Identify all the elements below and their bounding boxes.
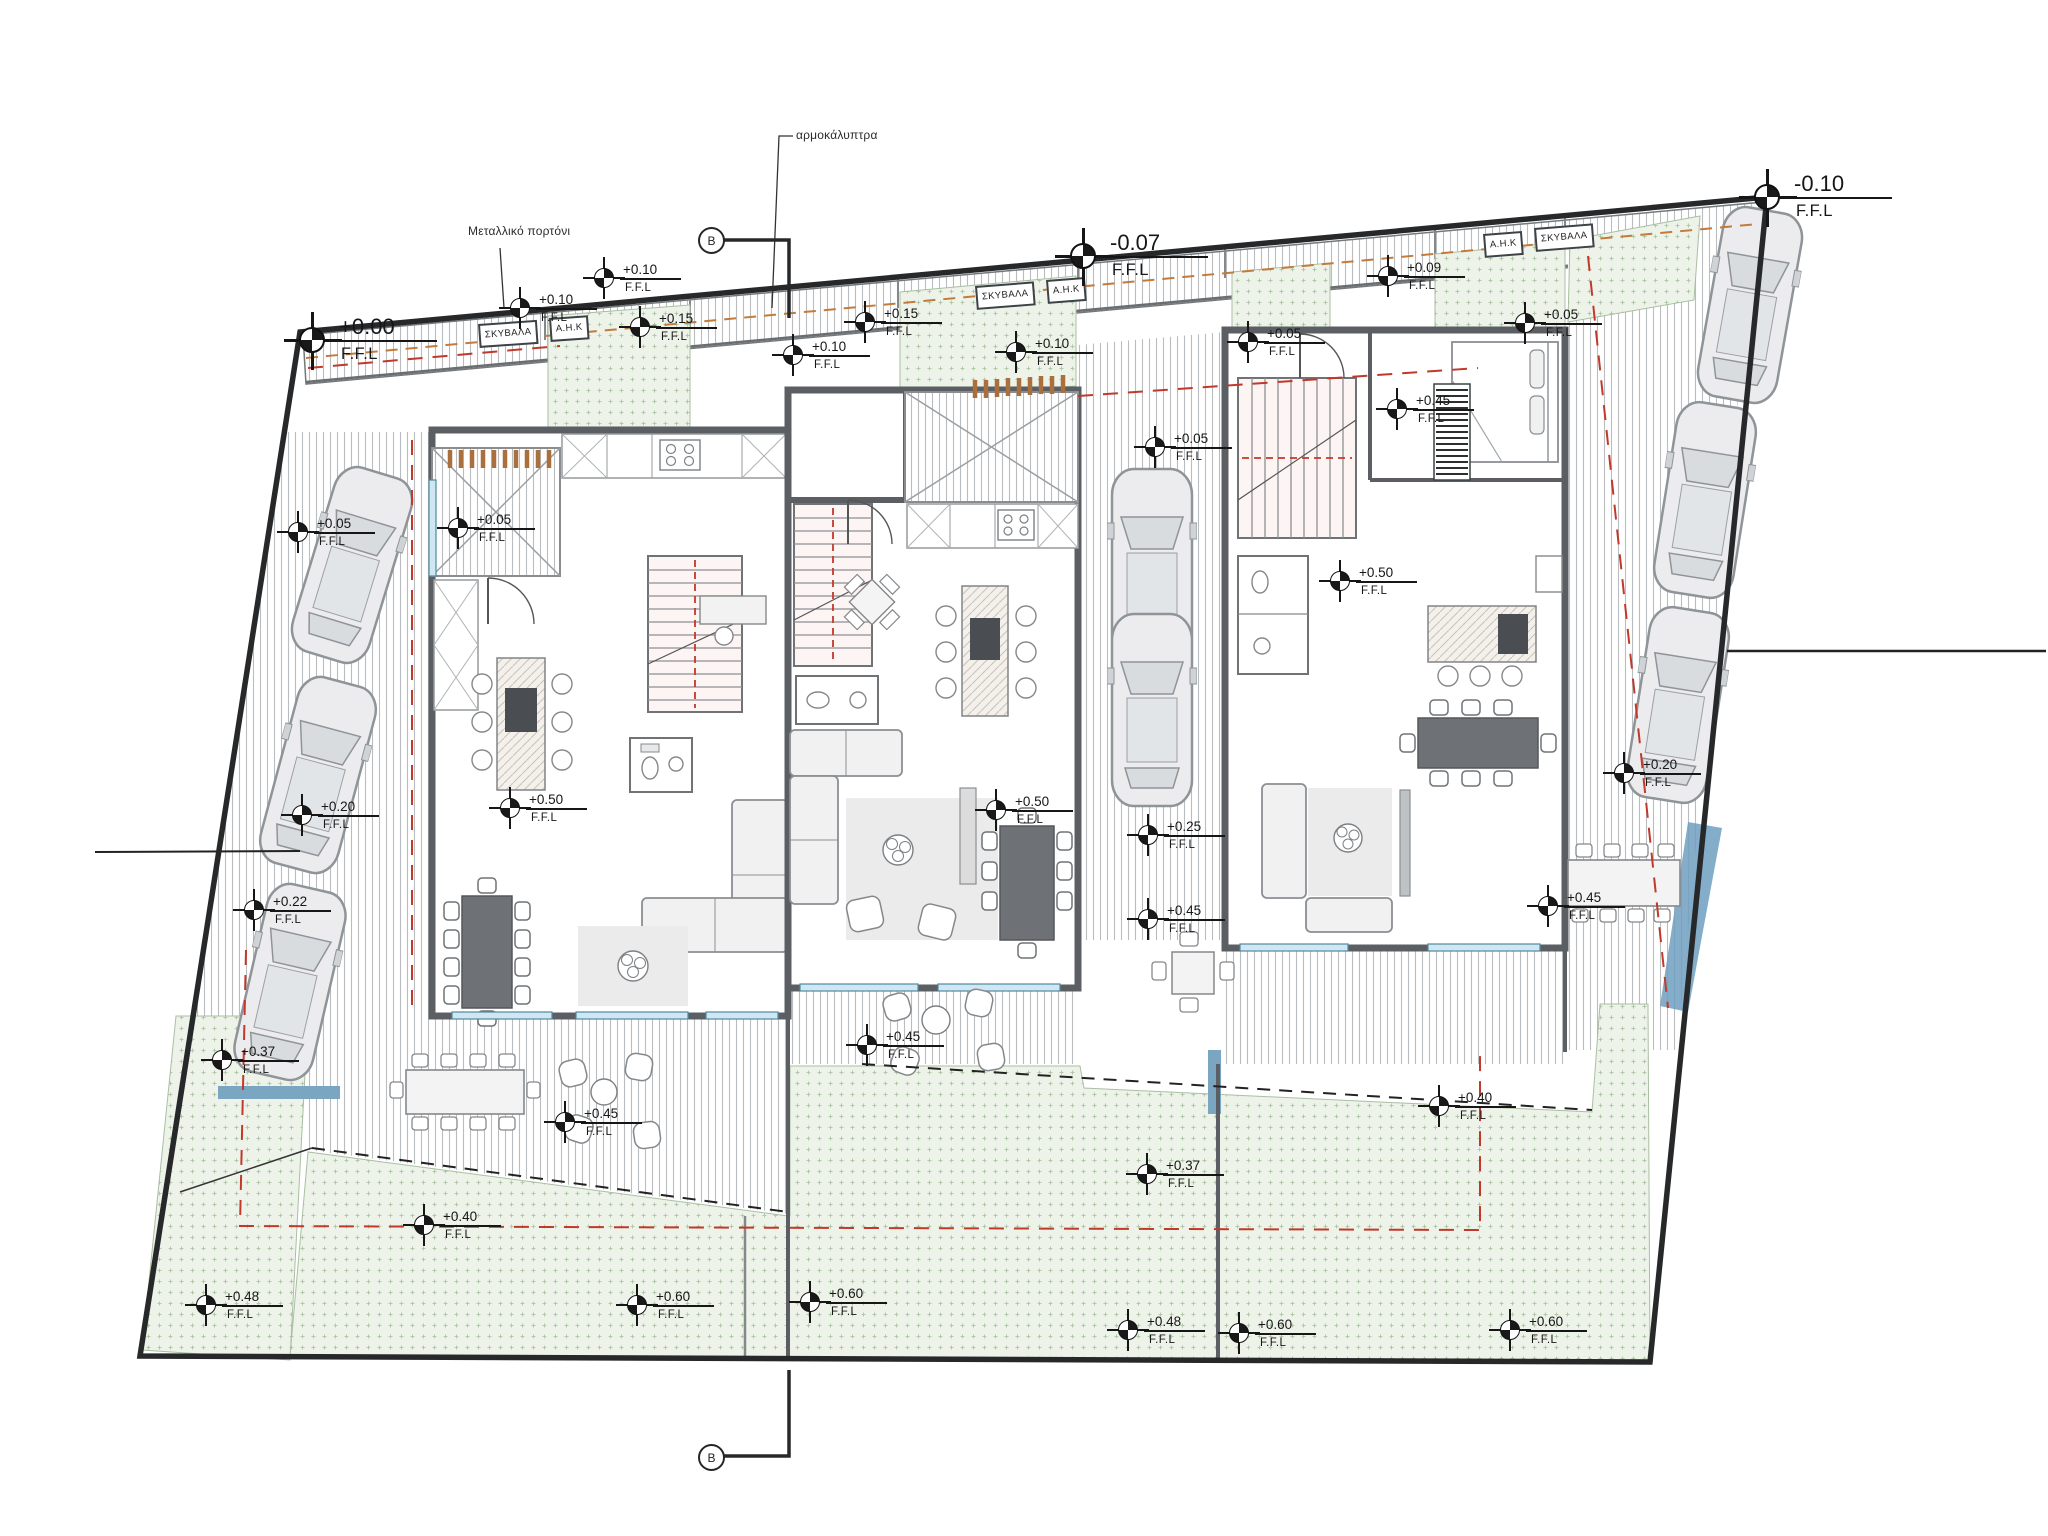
- level-suffix: F.F.L: [314, 534, 375, 549]
- level-suffix: F.F.L: [620, 280, 681, 295]
- survey-level-marker: -0.10F.F.L: [1747, 177, 1892, 220]
- spot-level-marker: +0.20F.F.L: [287, 800, 379, 832]
- level-suffix: F.F.L: [883, 1047, 944, 1062]
- level-value: +0.09: [1404, 260, 1465, 278]
- spot-level-marker: +0.45F.F.L: [550, 1107, 642, 1139]
- level-value: +0.45: [581, 1106, 642, 1124]
- spot-level-marker: +0.05F.F.L: [1140, 432, 1232, 464]
- level-value: +0.60: [826, 1286, 887, 1304]
- spot-level-marker: +0.37F.F.L: [207, 1045, 299, 1077]
- level-value: +0.05: [314, 516, 375, 534]
- spot-level-marker: +0.15F.F.L: [850, 307, 942, 339]
- level-suffix: F.F.L: [1264, 344, 1325, 359]
- level-value: +0.20: [1640, 757, 1701, 775]
- level-value: +0.50: [1012, 794, 1073, 812]
- spot-level-marker: +0.10F.F.L: [1001, 337, 1093, 369]
- crosshair-icon: [292, 320, 332, 360]
- level-value: +0.25: [1164, 819, 1225, 837]
- level-suffix: F.F.L: [656, 329, 717, 344]
- section-marker: B: [698, 1444, 725, 1471]
- level-value: +0.48: [1144, 1314, 1205, 1332]
- crosshair-icon: [589, 263, 619, 293]
- crosshair-icon: [850, 307, 880, 337]
- spot-level-marker: +0.20F.F.L: [1609, 758, 1701, 790]
- level-suffix: F.F.L: [1163, 1176, 1224, 1191]
- level-suffix: F.F.L: [1032, 354, 1093, 369]
- crosshair-icon: [981, 795, 1011, 825]
- level-suffix: F.F.L: [1356, 583, 1417, 598]
- crosshair-icon: [443, 513, 473, 543]
- spot-level-marker: +0.45F.F.L: [1533, 891, 1625, 923]
- crosshair-icon: [1747, 177, 1787, 217]
- level-value: +0.50: [526, 792, 587, 810]
- level-value: +0.05: [1541, 307, 1602, 325]
- annotation-label: αρμοκάλυπτρα: [796, 128, 878, 142]
- spot-level-marker: +0.48F.F.L: [191, 1290, 283, 1322]
- crosshair-icon: [622, 1290, 652, 1320]
- crosshair-icon: [1224, 1318, 1254, 1348]
- level-suffix: F.F.L: [474, 530, 535, 545]
- level-suffix: F.F.L: [1012, 812, 1073, 827]
- level-value: -0.10: [1790, 171, 1892, 199]
- crosshair-icon: [283, 517, 313, 547]
- crosshair-icon: [1233, 327, 1263, 357]
- level-suffix: F.F.L: [1790, 199, 1892, 220]
- level-suffix: F.F.L: [222, 1307, 283, 1322]
- spot-level-marker: +0.60F.F.L: [1495, 1315, 1587, 1347]
- level-suffix: F.F.L: [1255, 1335, 1316, 1350]
- spot-level-marker: +0.60F.F.L: [795, 1287, 887, 1319]
- level-value: +0.45: [1413, 393, 1474, 411]
- level-value: +0.10: [620, 262, 681, 280]
- crosshair-icon: [1510, 308, 1540, 338]
- terrace-unit3: [1225, 948, 1565, 1064]
- crosshair-icon: [1382, 394, 1412, 424]
- spot-level-marker: +0.45F.F.L: [852, 1030, 944, 1062]
- level-suffix: F.F.L: [1413, 411, 1474, 426]
- level-value: +0.15: [656, 311, 717, 329]
- level-value: +0.60: [1255, 1317, 1316, 1335]
- level-value: +0.05: [1264, 326, 1325, 344]
- utility-box: Α.Η.Κ: [1483, 231, 1524, 257]
- spot-level-marker: +0.05F.F.L: [283, 517, 375, 549]
- level-suffix: F.F.L: [1526, 1332, 1587, 1347]
- crosshair-icon: [1609, 758, 1639, 788]
- crosshair-icon: [409, 1210, 439, 1240]
- level-suffix: F.F.L: [826, 1304, 887, 1319]
- level-value: +0.15: [881, 306, 942, 324]
- level-suffix: F.F.L: [1640, 775, 1701, 790]
- stairs-unit3: [1238, 378, 1356, 538]
- level-value: +0.45: [1564, 890, 1625, 908]
- level-suffix: F.F.L: [270, 912, 331, 927]
- level-value: +0.60: [1526, 1314, 1587, 1332]
- level-value: +0.37: [1163, 1158, 1224, 1176]
- level-suffix: F.F.L: [653, 1307, 714, 1322]
- crosshair-icon: [852, 1030, 882, 1060]
- spot-level-marker: +0.40F.F.L: [409, 1210, 501, 1242]
- spot-level-marker: +0.40F.F.L: [1424, 1091, 1516, 1123]
- level-value: +0.20: [318, 799, 379, 817]
- level-value: +0.60: [653, 1289, 714, 1307]
- crosshair-icon: [287, 800, 317, 830]
- crosshair-icon: [1132, 1159, 1162, 1189]
- floor-plan-canvas: αρμοκάλυπτρα Μεταλλικό πορτόνι +0.00F.F.…: [0, 0, 2048, 1536]
- crosshair-icon: [207, 1045, 237, 1075]
- crosshair-icon: [1133, 820, 1163, 850]
- crosshair-icon: [1113, 1315, 1143, 1345]
- level-suffix: F.F.L: [1144, 1332, 1205, 1347]
- spot-level-marker: +0.10F.F.L: [778, 340, 870, 372]
- crosshair-icon: [1424, 1091, 1454, 1121]
- level-suffix: F.F.L: [1564, 908, 1625, 923]
- spot-level-marker: +0.05F.F.L: [1510, 308, 1602, 340]
- level-value: +0.40: [440, 1209, 501, 1227]
- level-suffix: F.F.L: [318, 817, 379, 832]
- level-suffix: F.F.L: [1164, 921, 1225, 936]
- level-value: +0.45: [1164, 903, 1225, 921]
- level-value: +0.00: [335, 314, 437, 342]
- spot-level-marker: +0.05F.F.L: [443, 513, 535, 545]
- spot-level-marker: +0.25F.F.L: [1133, 820, 1225, 852]
- level-suffix: F.F.L: [1455, 1108, 1516, 1123]
- survey-level-marker: -0.07F.F.L: [1063, 236, 1208, 279]
- level-value: +0.10: [536, 292, 597, 310]
- spot-level-marker: +0.48F.F.L: [1113, 1315, 1205, 1347]
- spot-level-marker: +0.45F.F.L: [1382, 394, 1474, 426]
- level-suffix: F.F.L: [1541, 325, 1602, 340]
- spot-level-marker: +0.10F.F.L: [589, 263, 681, 295]
- level-suffix: F.F.L: [440, 1227, 501, 1242]
- crosshair-icon: [1495, 1315, 1525, 1345]
- crosshair-icon: [191, 1290, 221, 1320]
- spot-level-marker: +0.15F.F.L: [625, 312, 717, 344]
- crosshair-icon: [795, 1287, 825, 1317]
- level-value: +0.10: [809, 339, 870, 357]
- level-value: +0.10: [1032, 336, 1093, 354]
- level-value: +0.40: [1455, 1090, 1516, 1108]
- level-value: +0.50: [1356, 565, 1417, 583]
- crosshair-icon: [1373, 261, 1403, 291]
- level-suffix: F.F.L: [238, 1062, 299, 1077]
- spot-level-marker: +0.60F.F.L: [1224, 1318, 1316, 1350]
- section-marker: B: [698, 227, 725, 254]
- crosshair-icon: [1140, 432, 1170, 462]
- level-suffix: F.F.L: [809, 357, 870, 372]
- crosshair-icon: [1063, 236, 1103, 276]
- crosshair-icon: [1533, 891, 1563, 921]
- spot-level-marker: +0.50F.F.L: [495, 793, 587, 825]
- spot-level-marker: +0.37F.F.L: [1132, 1159, 1224, 1191]
- level-value: +0.22: [270, 894, 331, 912]
- level-suffix: F.F.L: [335, 342, 437, 363]
- spot-level-marker: +0.45F.F.L: [1133, 904, 1225, 936]
- crosshair-icon: [1325, 566, 1355, 596]
- plan-linework: [0, 0, 2048, 1536]
- level-suffix: F.F.L: [1164, 837, 1225, 852]
- spot-level-marker: +0.05F.F.L: [1233, 327, 1325, 359]
- level-value: +0.48: [222, 1289, 283, 1307]
- utility-box: Α.Η.Κ: [1046, 277, 1087, 303]
- level-suffix: F.F.L: [536, 310, 597, 325]
- level-value: -0.07: [1106, 230, 1208, 258]
- level-suffix: F.F.L: [526, 810, 587, 825]
- level-value: +0.05: [1171, 431, 1232, 449]
- crosshair-icon: [239, 895, 269, 925]
- level-suffix: F.F.L: [881, 324, 942, 339]
- utility-box: ΣΚΥΒΑΛΑ: [975, 281, 1035, 309]
- crosshair-icon: [1133, 904, 1163, 934]
- level-value: +0.37: [238, 1044, 299, 1062]
- level-suffix: F.F.L: [1106, 258, 1208, 279]
- level-suffix: F.F.L: [1171, 449, 1232, 464]
- crosshair-icon: [495, 793, 525, 823]
- spot-level-marker: +0.22F.F.L: [239, 895, 331, 927]
- spot-level-marker: +0.09F.F.L: [1373, 261, 1465, 293]
- unit-2: [788, 375, 1078, 991]
- annotation-label: Μεταλλικό πορτόνι: [468, 224, 570, 238]
- level-suffix: F.F.L: [581, 1124, 642, 1139]
- crosshair-icon: [625, 312, 655, 342]
- level-value: +0.05: [474, 512, 535, 530]
- crosshair-icon: [550, 1107, 580, 1137]
- spot-level-marker: +0.10F.F.L: [505, 293, 597, 325]
- utility-box: ΣΚΥΒΑΛΑ: [1534, 223, 1594, 251]
- crosshair-icon: [1001, 337, 1031, 367]
- level-suffix: F.F.L: [1404, 278, 1465, 293]
- crosshair-icon: [778, 340, 808, 370]
- level-value: +0.45: [883, 1029, 944, 1047]
- survey-level-marker: +0.00F.F.L: [292, 320, 437, 363]
- crosshair-icon: [505, 293, 535, 323]
- spot-level-marker: +0.60F.F.L: [622, 1290, 714, 1322]
- spot-level-marker: +0.50F.F.L: [981, 795, 1073, 827]
- spot-level-marker: +0.50F.F.L: [1325, 566, 1417, 598]
